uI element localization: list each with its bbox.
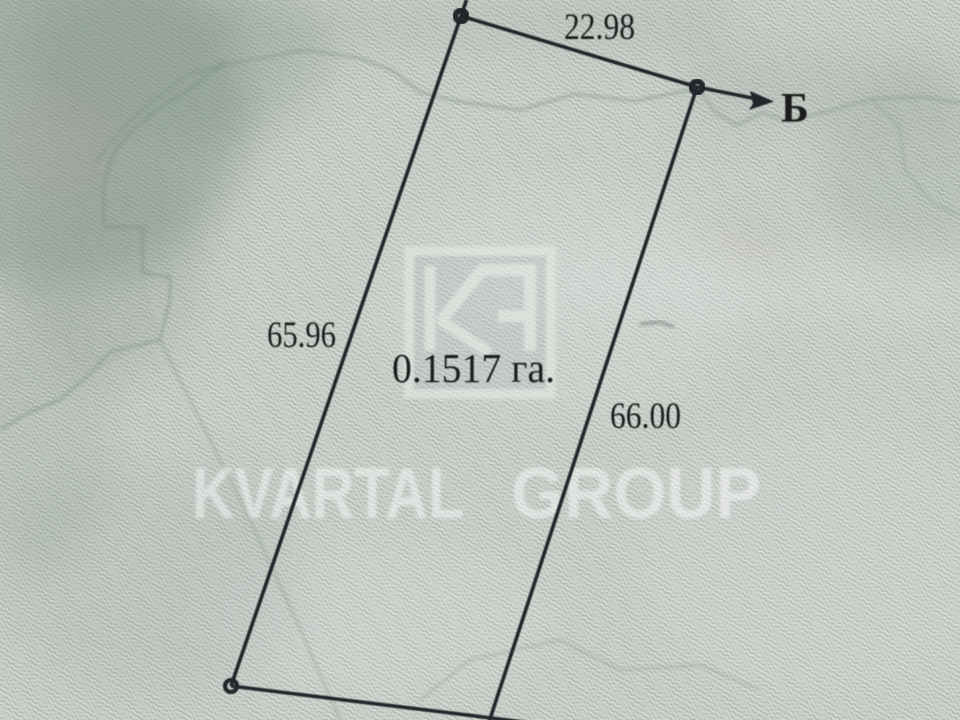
svg-text:GROUP: GROUP [511,454,761,534]
svg-text:65.96: 65.96 [267,315,336,356]
svg-text:66.00: 66.00 [610,396,681,437]
svg-text:KVARTAL: KVARTAL [192,454,464,534]
svg-text:0.1517 га.: 0.1517 га. [392,345,555,391]
svg-text:Б: Б [781,86,809,132]
svg-text:22.98: 22.98 [564,7,635,48]
